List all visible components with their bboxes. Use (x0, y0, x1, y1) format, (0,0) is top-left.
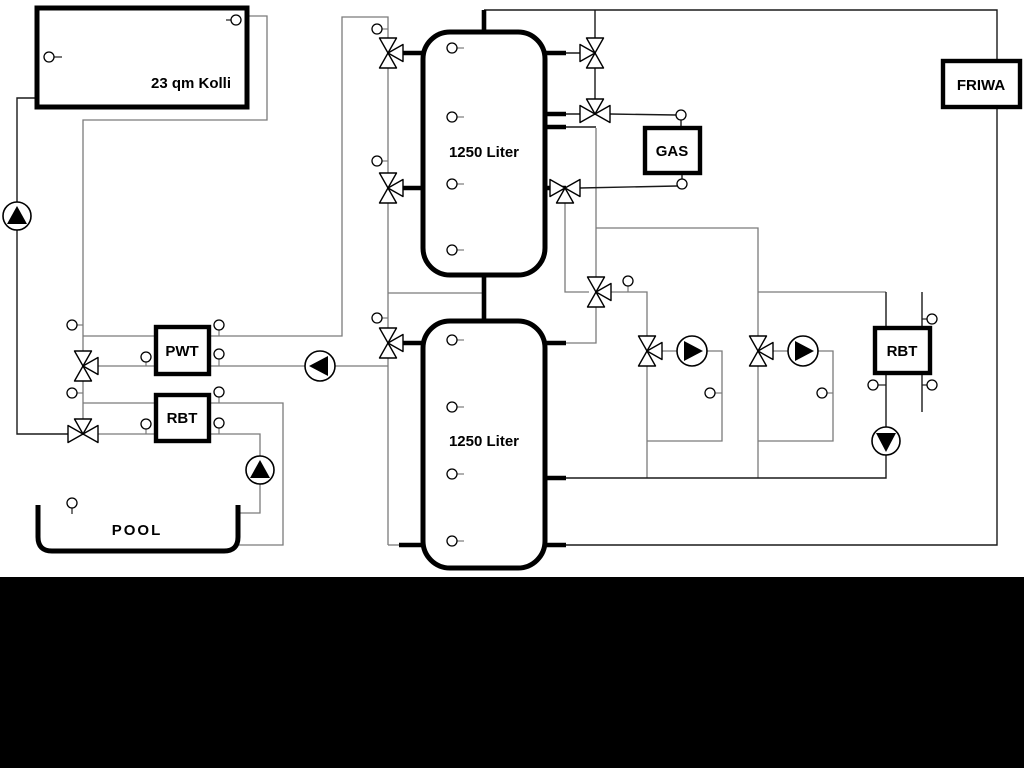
pump-rbt-right-return (872, 427, 900, 455)
pump-solar-collector (3, 202, 31, 230)
pool-label: POOL (112, 522, 163, 539)
pump-heating-group1 (677, 336, 707, 366)
tank-top-label: 1250 Liter (449, 144, 519, 161)
solar-collector-box (37, 8, 247, 107)
letterbox-footer-band (0, 577, 1024, 768)
friwa-label: FRIWA (957, 77, 1005, 94)
gas-boiler-label: GAS (656, 143, 689, 160)
rbt-left-label: RBT (167, 410, 198, 427)
pwt-label: PWT (165, 343, 198, 360)
heating-schematic: 23 qm Kolli 1250 Liter 1250 Liter GAS FR… (0, 0, 1024, 768)
tank-bottom-label: 1250 Liter (449, 433, 519, 450)
schematic-page: 23 qm Kolli 1250 Liter 1250 Liter GAS FR… (0, 0, 1024, 768)
pump-pool-circuit (246, 456, 274, 484)
collector-label: 23 qm Kolli (151, 75, 231, 92)
pump-pwt-charge (305, 351, 335, 381)
pump-heating-group2 (788, 336, 818, 366)
rbt-right-label: RBT (887, 343, 918, 360)
